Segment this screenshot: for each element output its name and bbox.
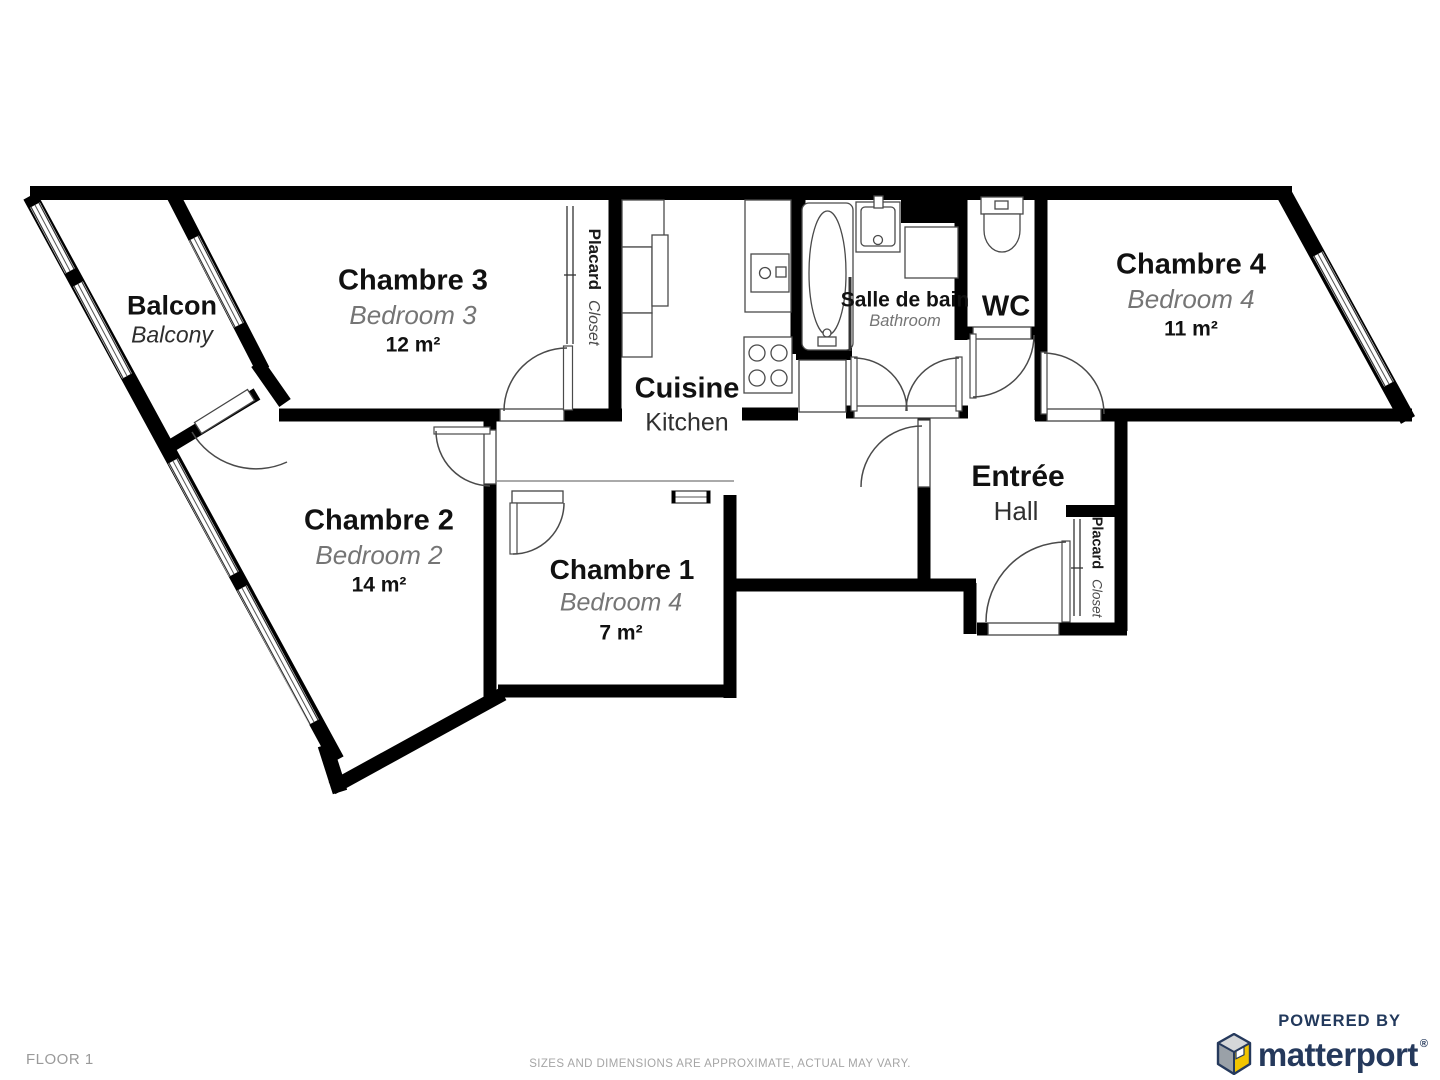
matterport-cube-icon — [1216, 1033, 1252, 1075]
room-label-balcony: Balcon — [127, 293, 217, 320]
floor-label: FLOOR 1 — [26, 1051, 94, 1068]
disclaimer-text: SIZES AND DIMENSIONS ARE APPROXIMATE, AC… — [529, 1058, 911, 1070]
room-label-bathroom-en: Bathroom — [869, 313, 941, 330]
windows — [31, 203, 1393, 724]
room-area-bedroom3: 12 m² — [386, 335, 441, 356]
matterport-branding: POWERED BY matterport ® — [1216, 1012, 1428, 1075]
room-label-hall-en: Hall — [994, 498, 1039, 524]
door-bedroom4 — [1041, 352, 1104, 414]
room-label-bedroom3: Chambre 3 — [338, 267, 488, 296]
closet-alt: Closet — [585, 300, 601, 345]
powered-by-text: POWERED BY — [1216, 1012, 1401, 1031]
closet-name: Placard — [1089, 517, 1104, 569]
door-bedroom1 — [510, 503, 564, 554]
room-label-bedroom1: Chambre 1 — [550, 556, 695, 584]
stove — [744, 337, 792, 393]
room-label-bedroom3-en: Bedroom 3 — [349, 302, 476, 328]
closet-label-bedroom3: Placard Closet — [585, 229, 603, 346]
room-area-bedroom4: 11 m² — [1164, 319, 1218, 340]
window-bedroom1 — [672, 491, 710, 503]
washer — [905, 227, 958, 278]
window-bedroom4 — [1314, 252, 1393, 386]
floor-plan-drawing — [0, 0, 1440, 1080]
toilet — [981, 197, 1023, 252]
door-wc — [970, 334, 1034, 398]
matterport-wordmark: matterport — [1258, 1038, 1418, 1071]
floor-plan-page: Balcon Balcony Chambre 3 Bedroom 3 12 m²… — [0, 0, 1440, 1080]
registered-mark: ® — [1420, 1038, 1428, 1050]
room-label-kitchen-en: Kitchen — [645, 411, 728, 436]
kitchen-sink — [751, 254, 789, 292]
bathtub — [802, 203, 853, 350]
walls — [30, 192, 1412, 792]
room-label-balcony-en: Balcony — [131, 324, 213, 347]
room-label-hall: Entrée — [971, 462, 1064, 492]
bathroom-sink — [856, 196, 900, 252]
closet-alt: Closet — [1090, 579, 1104, 617]
door-bedroom3 — [504, 346, 573, 411]
bath-niche — [799, 360, 846, 412]
room-label-bedroom4: Chambre 4 — [1116, 251, 1266, 280]
room-area-bedroom1: 7 m² — [599, 623, 642, 644]
door-balcony — [192, 432, 287, 469]
room-label-kitchen: Cuisine — [635, 375, 740, 404]
door-bedroom2 — [434, 427, 490, 486]
room-label-bedroom1-en: Bedroom 4 — [560, 591, 682, 616]
room-label-wc: WC — [982, 293, 1030, 322]
closet-label-hall: Placard Closet — [1089, 517, 1104, 618]
duct-block — [901, 196, 958, 223]
room-area-bedroom2: 14 m² — [352, 575, 407, 596]
closet-name: Placard — [586, 229, 603, 290]
room-label-bedroom4-en: Bedroom 4 — [1127, 286, 1254, 312]
door-bathroom-double — [851, 357, 962, 411]
room-label-bathroom: Salle de bain — [841, 290, 969, 311]
room-label-bedroom2-en: Bedroom 2 — [315, 542, 442, 568]
door-entry — [986, 541, 1070, 622]
door-hall-corridor — [861, 426, 922, 487]
room-label-bedroom2: Chambre 2 — [304, 507, 454, 536]
